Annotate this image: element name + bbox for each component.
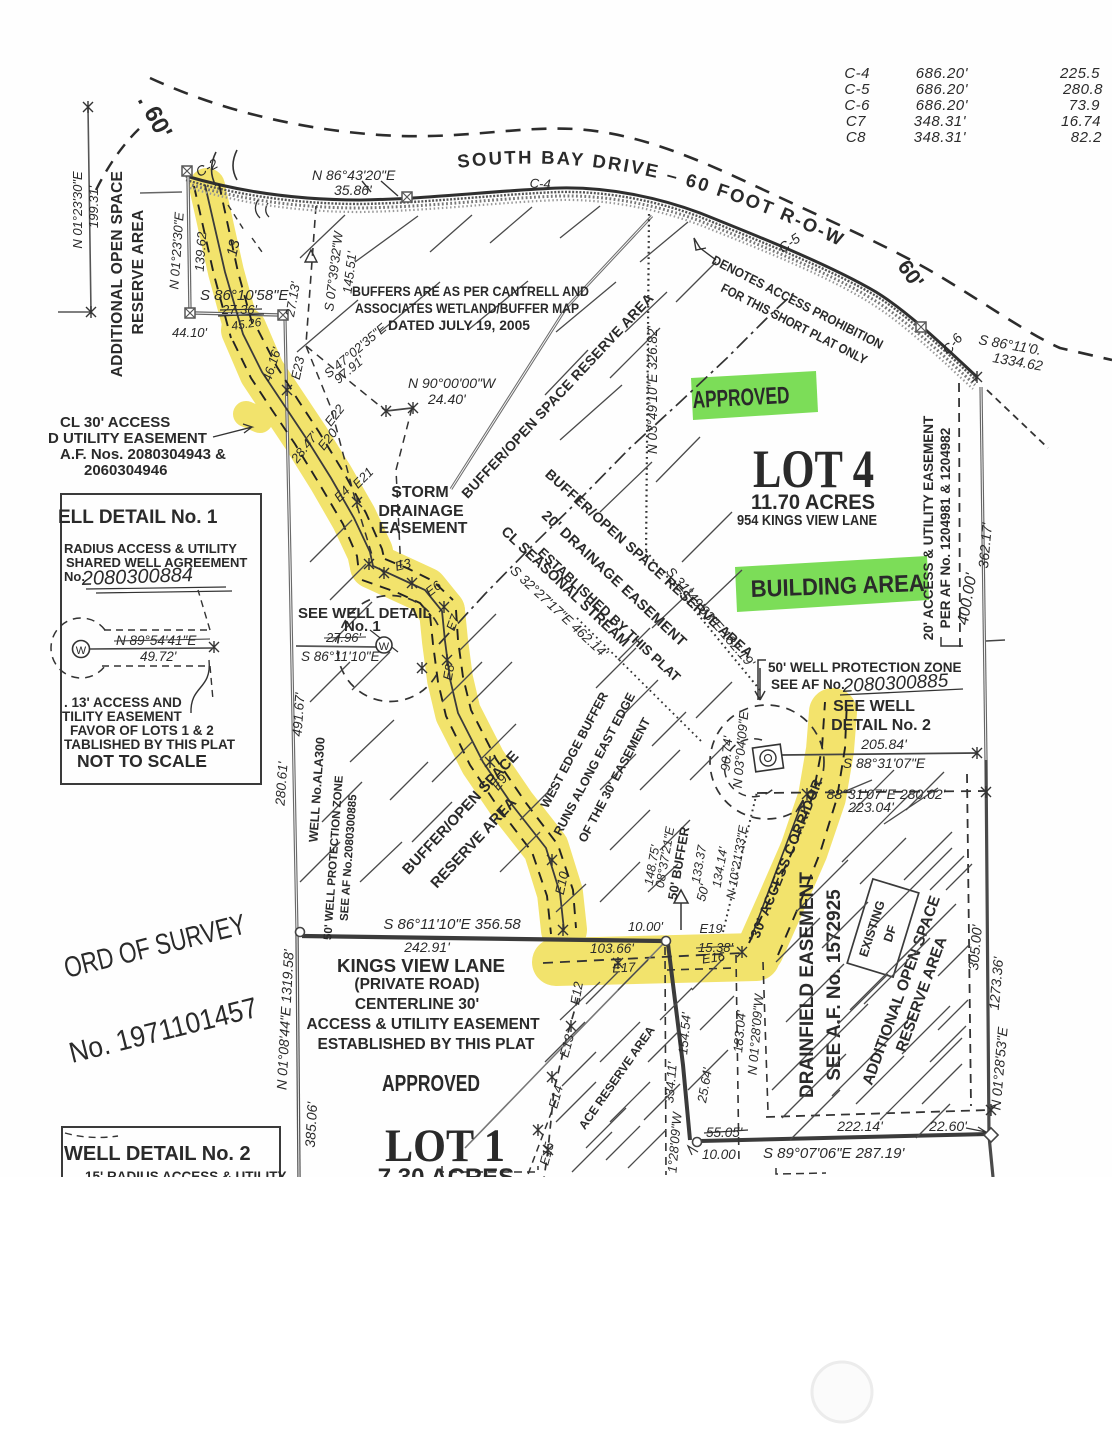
svg-text:222.14': 222.14' (836, 1118, 884, 1134)
svg-text:CENTERLINE 30': CENTERLINE 30' (355, 996, 479, 1013)
svg-text:RESERVE AREA: RESERVE AREA (130, 209, 147, 334)
svg-text:NOT TO SCALE: NOT TO SCALE (77, 751, 207, 771)
svg-text:C8: C8 (846, 129, 866, 146)
svg-text:280.8: 280.8 (1062, 81, 1103, 98)
svg-text:2060304946: 2060304946 (84, 462, 167, 479)
svg-text:KINGS VIEW LANE: KINGS VIEW LANE (337, 955, 505, 976)
svg-text:SEE AF No.: SEE AF No. (771, 677, 845, 692)
svg-text:APPROVED: APPROVED (382, 1070, 480, 1096)
svg-text:205.84': 205.84' (860, 736, 908, 752)
svg-text:20' ACCESS & UTILITY EASEMENT: 20' ACCESS & UTILITY EASEMENT (921, 415, 936, 640)
svg-text:199.31': 199.31' (86, 185, 101, 228)
svg-text:C-4: C-4 (529, 175, 551, 191)
svg-text:223.04': 223.04' (847, 799, 895, 815)
svg-text:ESTABLISHED BY THIS PLAT: ESTABLISHED BY THIS PLAT (317, 1036, 535, 1053)
svg-text:686.20': 686.20' (916, 81, 969, 98)
svg-text:C-6: C-6 (844, 97, 870, 114)
svg-text:DRAINAGE: DRAINAGE (378, 503, 464, 520)
svg-text:SEE WELL: SEE WELL (833, 698, 915, 715)
svg-text:N 01°23'30"E: N 01°23'30"E (70, 171, 85, 249)
svg-text:73.9: 73.9 (1069, 97, 1100, 114)
svg-text:44.10': 44.10' (172, 325, 208, 340)
svg-text:TABLISHED BY THIS PLAT: TABLISHED BY THIS PLAT (64, 737, 236, 752)
svg-text:686.20': 686.20' (916, 65, 969, 82)
svg-text:N 90°00'00"W: N 90°00'00"W (408, 375, 497, 391)
svg-text:S 86°11'10"E 356.58: S 86°11'10"E 356.58 (383, 916, 521, 933)
svg-text:TILITY EASEMENT: TILITY EASEMENT (62, 709, 183, 724)
svg-text:C-4: C-4 (844, 65, 870, 82)
svg-text:LOT 4: LOT 4 (753, 439, 874, 499)
svg-text:C-5: C-5 (844, 81, 870, 98)
svg-text:385.06': 385.06' (302, 1100, 320, 1148)
svg-text:348.31': 348.31' (914, 129, 967, 146)
svg-text:35.86': 35.86' (334, 182, 373, 198)
svg-text:ASSOCIATES WETLAND/BUFFER MAP: ASSOCIATES WETLAND/BUFFER MAP (355, 300, 579, 316)
svg-text:139.62: 139.62 (192, 231, 210, 272)
svg-text:22.60': 22.60' (928, 1118, 968, 1134)
svg-text:ACCESS & UTILITY EASEMENT: ACCESS & UTILITY EASEMENT (306, 1016, 540, 1033)
svg-text:BUFFERS ARE AS PER CANTRELL AN: BUFFERS ARE AS PER CANTRELL AND (352, 283, 589, 299)
svg-text:N 03°49'10"E 326.82': N 03°49'10"E 326.82' (645, 326, 660, 454)
svg-text:W: W (76, 645, 87, 657)
svg-text:SEE A.F. No. 1572925: SEE A.F. No. 1572925 (824, 889, 845, 1081)
svg-text:CL 30' ACCESS: CL 30' ACCESS (60, 414, 170, 431)
svg-text:82.2: 82.2 (1071, 129, 1102, 146)
svg-text:11.70 ACRES: 11.70 ACRES (751, 491, 875, 514)
svg-text:E17: E17 (612, 959, 637, 975)
svg-text:24.40': 24.40' (427, 391, 467, 407)
svg-text:S 89°07'06"E 287.19': S 89°07'06"E 287.19' (763, 1145, 905, 1162)
svg-text:WELL DETAIL No. 2: WELL DETAIL No. 2 (64, 1143, 251, 1165)
svg-text:280.61': 280.61' (272, 761, 290, 807)
svg-text:10.00': 10.00' (628, 919, 664, 934)
svg-text:N 86°43'20"E: N 86°43'20"E (312, 167, 396, 183)
svg-text:DETAIL No. 2: DETAIL No. 2 (831, 717, 931, 734)
svg-text:954 KINGS VIEW LANE: 954 KINGS VIEW LANE (737, 512, 877, 529)
svg-text:RADIUS ACCESS & UTILITY: RADIUS ACCESS & UTILITY (64, 541, 237, 556)
svg-text:FAVOR OF LOTS 1 & 2: FAVOR OF LOTS 1 & 2 (70, 723, 214, 738)
svg-text:APPROVED: APPROVED (692, 382, 790, 414)
svg-text:STORM: STORM (391, 484, 448, 501)
svg-text:686.20': 686.20' (916, 97, 969, 114)
svg-text:S 88°31'07"E: S 88°31'07"E (843, 755, 926, 771)
svg-text:W: W (379, 641, 390, 653)
svg-text:EASEMENT: EASEMENT (379, 520, 468, 537)
svg-text:10.00: 10.00 (702, 1147, 736, 1162)
svg-text:ADDITIONAL OPEN SPACE: ADDITIONAL OPEN SPACE (109, 171, 126, 377)
svg-text:ELL DETAIL No. 1: ELL DETAIL No. 1 (58, 507, 218, 528)
svg-text:2080300884: 2080300884 (80, 564, 193, 590)
svg-text:16.74: 16.74 (1061, 113, 1101, 130)
svg-text:DRAINFIELD EASEMENT: DRAINFIELD EASEMENT (797, 872, 818, 1098)
svg-text:491.67': 491.67' (289, 692, 307, 737)
svg-text:348.31': 348.31' (914, 113, 967, 130)
svg-text:S 86°11'10"E: S 86°11'10"E (301, 649, 381, 664)
svg-text:225.5: 225.5 (1059, 65, 1100, 82)
svg-text:103.66': 103.66' (590, 941, 634, 956)
svg-text:DATED JULY 19, 2005: DATED JULY 19, 2005 (388, 317, 530, 333)
svg-text:242.91': 242.91' (403, 939, 451, 955)
svg-text:49.72': 49.72' (140, 649, 177, 664)
svg-text:D UTILITY EASEMENT: D UTILITY EASEMENT (48, 430, 207, 447)
svg-text:C7: C7 (846, 113, 866, 130)
svg-text:(PRIVATE ROAD): (PRIVATE ROAD) (354, 976, 479, 993)
svg-text:A.F. Nos. 2080304943 &: A.F. Nos. 2080304943 & (60, 446, 226, 463)
svg-text:E19: E19 (699, 921, 722, 936)
svg-text:. 13' ACCESS AND: . 13' ACCESS AND (64, 695, 182, 710)
svg-text:PER AF No. 1204981 & 1204982: PER AF No. 1204981 & 1204982 (938, 428, 953, 629)
